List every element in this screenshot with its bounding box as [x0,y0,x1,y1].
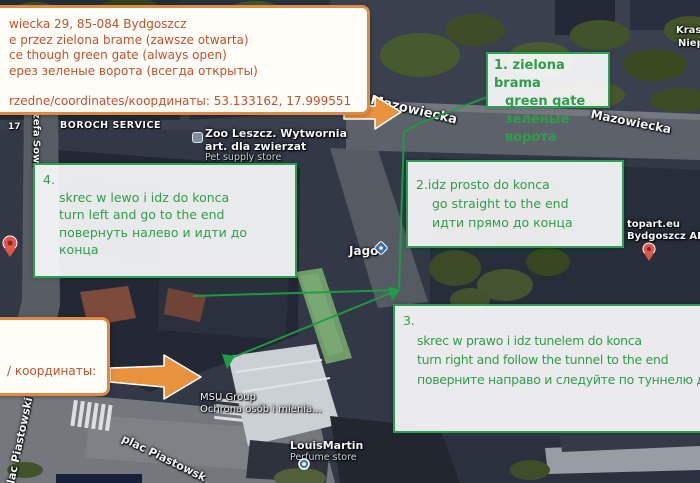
map-pin-red-topart [643,243,655,261]
map-pin-red-left [3,236,17,257]
step1-line-en: green gate [494,93,604,111]
step3-number: 3. [403,311,700,331]
step4-line-pl: skrec w lewo i idz do konca [43,189,289,207]
step2-line-ru: идти прямо до конца [416,213,616,232]
address-line-1: wiecka 29, 85-084 Bydgoszcz [9,17,359,33]
step3-annotation-box: 3. skrec w prawo i idz tunelem do konca … [393,304,700,433]
address-coordinates-line: rzedne/coordinates/координаты: 53.133162… [9,94,359,110]
map-pin-blue-jago-dot [379,246,383,250]
map-pin-blue-louismartin [299,459,309,469]
step1-line-ru: зеленые ворота [494,111,604,147]
orange-arrow-coords [110,355,201,399]
step3-line-en: turn right and follow the tunnel to the … [403,350,700,370]
step2-line-en: go straight to the end [416,194,616,213]
step4-number: 4. [43,171,289,189]
step1-annotation-box: 1. zielona brama green gate зеленые воро… [486,52,610,108]
step4-line-ru: повернуть налево и идти до конца [43,224,289,259]
step4-line-en: turn left and go to the end [43,206,289,224]
route-arrowhead-destination [222,354,235,369]
step1-line-pl: 1. zielona brama [494,57,604,93]
step2-annotation-box: 2.idz prosto do konca go straight to the… [406,160,624,248]
step4-annotation-box: 4. skrec w lewo i idz do konca turn left… [33,163,297,278]
address-line-4: ерез зеленые ворота (всегда открыты) [9,64,359,80]
address-annotation-box: wiecka 29, 85-084 Bydgoszcz e przez ziel… [0,5,370,115]
step3-line-ru: поверните направо и следуйте по туннелю … [403,370,700,390]
step2-line-pl: 2.idz prosto do konca [416,175,616,194]
step3-line-pl: skrec w prawo i idz tunelem do konca [403,331,700,351]
annotated-satellite-map: Mazowiecka Mazowiecka Kras Niep 17 BOROC… [0,0,700,483]
coords-annotation-box: / координаты: [0,317,110,396]
address-line-3: ce though green gate (always open) [9,48,359,64]
address-line-2: e przez zielona brame (zawsze otwarta) [9,33,359,49]
coords-label: / координаты: [7,364,103,378]
